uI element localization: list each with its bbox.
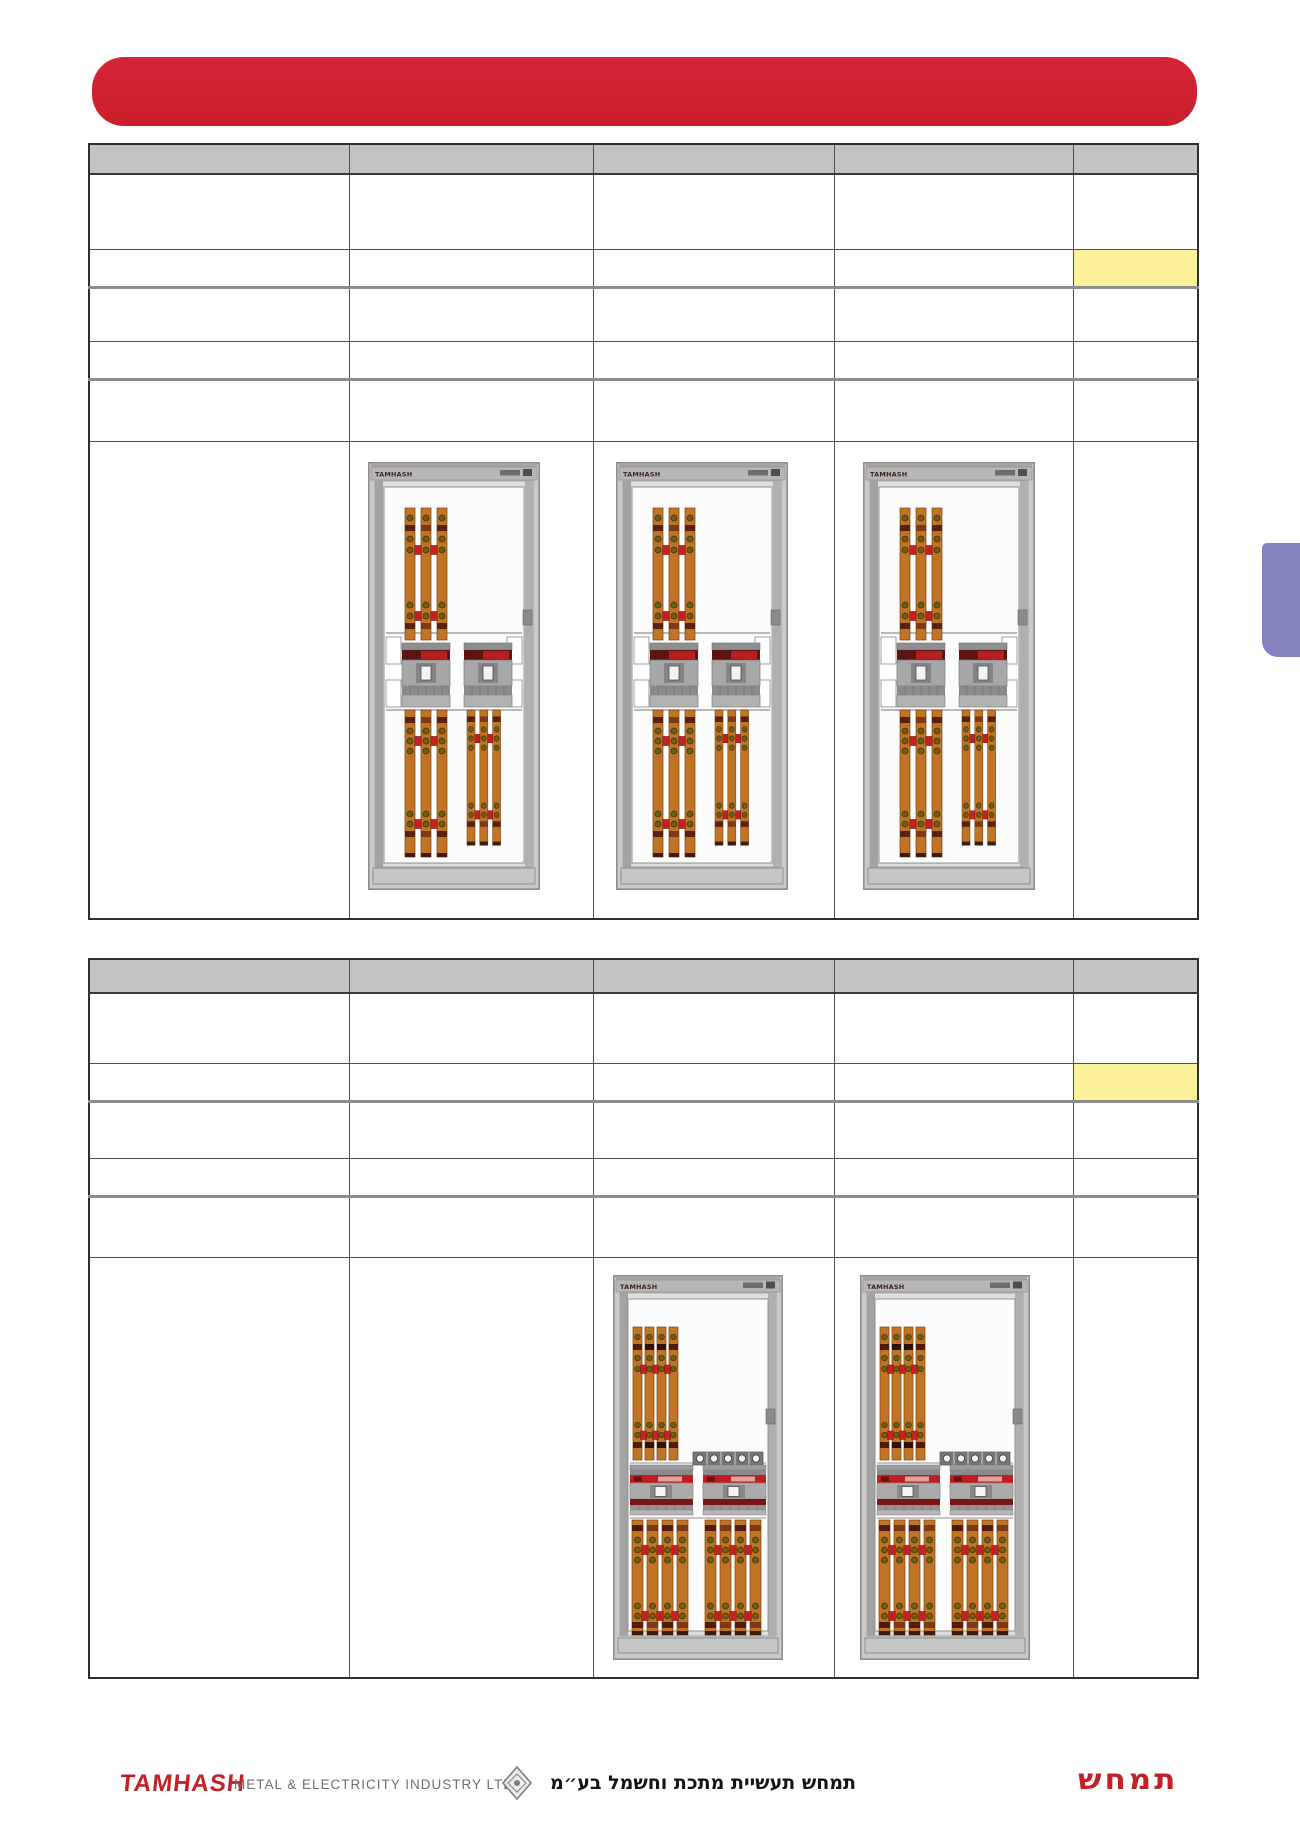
table-cell	[834, 993, 1073, 1063]
table-cell	[349, 1101, 593, 1158]
table1-header-cell	[834, 144, 1073, 174]
table-cell	[89, 1158, 349, 1196]
table-cell	[593, 1158, 834, 1196]
table-cell	[593, 287, 834, 341]
table-cell	[834, 174, 1073, 249]
company-name-hebrew: תמחש תעשיית מתכת וחשמל בע״מ	[550, 1772, 856, 1794]
table1-header-cell	[1073, 144, 1198, 174]
table-cell	[1073, 993, 1198, 1063]
table-cell	[1073, 1196, 1198, 1257]
table2-header-cell	[1073, 959, 1198, 993]
table-cell	[349, 341, 593, 379]
table-cell	[89, 341, 349, 379]
image-cell	[349, 1257, 593, 1678]
highlighted-cell	[1073, 249, 1198, 287]
page-footer: TAMHASH METAL & ELECTRICITY INDUSTRY LTD…	[0, 1762, 1300, 1812]
table-cell	[1073, 1158, 1198, 1196]
switchboard-panel-image-3	[863, 462, 1035, 890]
table1-header-cell	[593, 144, 834, 174]
table-cell	[349, 379, 593, 441]
tamhash-logo: TAMHASH	[119, 1770, 247, 1798]
table-cell	[593, 174, 834, 249]
table-cell	[834, 1101, 1073, 1158]
table-cell	[834, 1063, 1073, 1101]
table-cell	[89, 993, 349, 1063]
table-cell	[89, 1063, 349, 1101]
table-cell	[89, 249, 349, 287]
table-cell	[349, 993, 593, 1063]
table-cell	[593, 341, 834, 379]
standards-mark-icon	[502, 1766, 532, 1800]
table-cell	[1073, 1101, 1198, 1158]
table-cell	[593, 379, 834, 441]
table-cell	[89, 379, 349, 441]
section-title-bar	[92, 57, 1197, 126]
table-cell	[349, 1063, 593, 1101]
table-cell	[1073, 379, 1198, 441]
table-cell	[593, 1101, 834, 1158]
table-cell	[349, 249, 593, 287]
table2-header-cell	[834, 959, 1073, 993]
table-cell	[349, 174, 593, 249]
table-cell	[1073, 174, 1198, 249]
table-cell	[593, 1063, 834, 1101]
image-cell	[1073, 1257, 1198, 1678]
switchboard-panel-image-5	[860, 1275, 1030, 1660]
image-cell	[89, 1257, 349, 1678]
switchboard-panel-image-2	[616, 462, 788, 890]
table-cell	[349, 1196, 593, 1257]
image-cell	[89, 441, 349, 919]
highlighted-cell	[1073, 1063, 1198, 1101]
table-cell	[1073, 287, 1198, 341]
switchboard-panel-image-1	[368, 462, 540, 890]
catalog-page: TAMHASH	[0, 0, 1300, 1839]
table-cell	[89, 287, 349, 341]
table2-header-cell	[349, 959, 593, 993]
table-cell	[593, 1196, 834, 1257]
image-cell	[1073, 441, 1198, 919]
table-cell	[834, 249, 1073, 287]
table-cell	[349, 1158, 593, 1196]
table-cell	[89, 1101, 349, 1158]
table2-header-cell	[593, 959, 834, 993]
table-cell	[834, 341, 1073, 379]
table-cell	[593, 993, 834, 1063]
table2-header-cell	[89, 959, 349, 993]
table-cell	[89, 1196, 349, 1257]
table-cell	[349, 287, 593, 341]
chapter-side-tab	[1262, 543, 1300, 657]
table1-header-cell	[89, 144, 349, 174]
company-name-text: METAL & ELECTRICITY INDUSTRY LTD	[234, 1777, 514, 1792]
table-cell	[834, 287, 1073, 341]
table-cell	[834, 1158, 1073, 1196]
table-cell	[1073, 341, 1198, 379]
table-cell	[834, 1196, 1073, 1257]
table1-header-cell	[349, 144, 593, 174]
tamhash-hebrew-logo: תמחש	[1078, 1763, 1178, 1796]
table-cell	[89, 174, 349, 249]
table-cell	[593, 249, 834, 287]
switchboard-panel-image-4	[613, 1275, 783, 1660]
table-cell	[834, 379, 1073, 441]
